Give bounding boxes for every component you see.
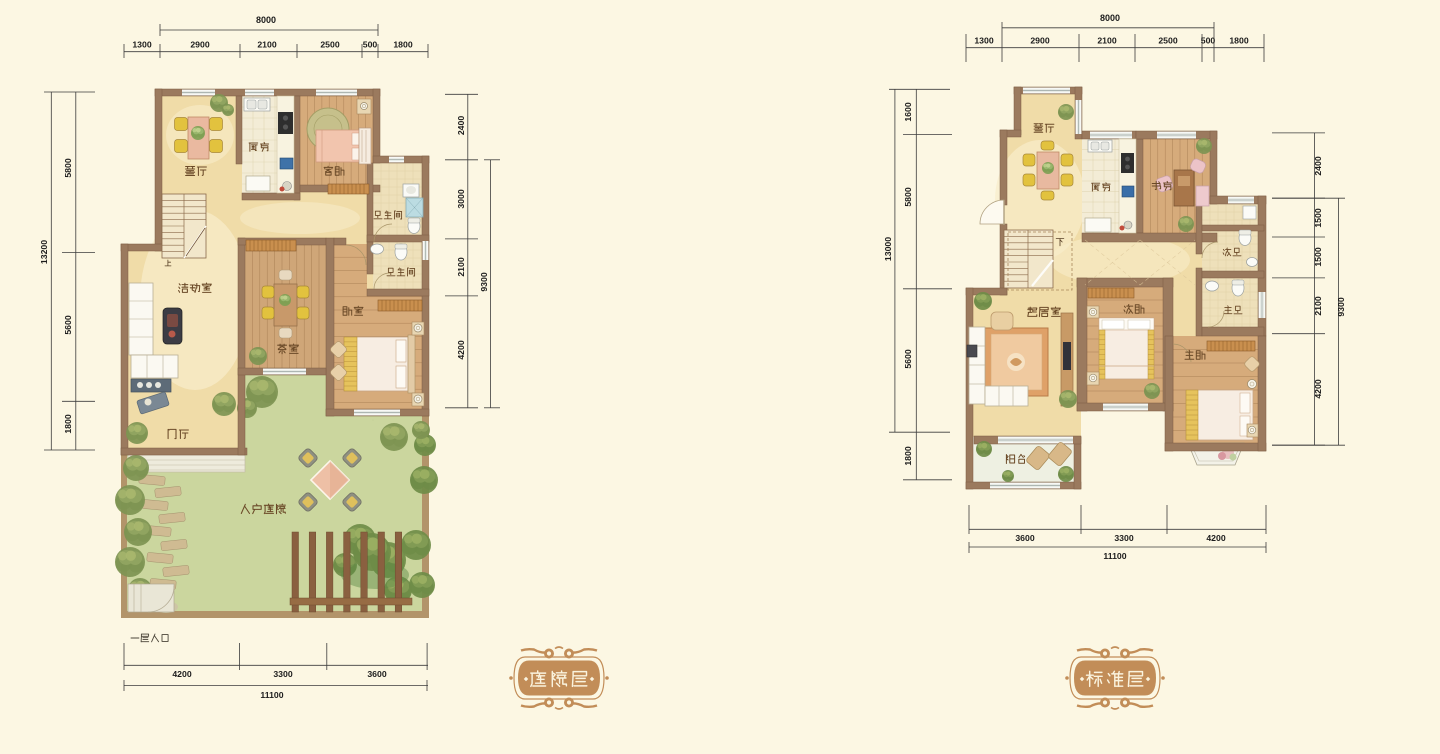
svg-text:2500: 2500 [320, 40, 339, 50]
svg-text:1800: 1800 [393, 40, 412, 50]
svg-text:1500: 1500 [1313, 247, 1323, 266]
svg-text:2400: 2400 [456, 116, 466, 135]
svg-text:9300: 9300 [1336, 297, 1346, 316]
svg-text:1800: 1800 [903, 446, 913, 465]
svg-text:1500: 1500 [1313, 208, 1323, 227]
svg-text:3300: 3300 [1114, 533, 1133, 543]
svg-text:4200: 4200 [456, 340, 466, 359]
svg-text:2100: 2100 [257, 40, 276, 50]
svg-text:13200: 13200 [39, 240, 49, 264]
svg-text:2900: 2900 [1030, 36, 1049, 46]
svg-text:3600: 3600 [367, 669, 386, 679]
svg-text:1800: 1800 [1229, 36, 1248, 46]
svg-text:500: 500 [363, 40, 378, 50]
svg-text:5600: 5600 [903, 349, 913, 368]
svg-text:500: 500 [1201, 36, 1216, 46]
svg-text:4200: 4200 [172, 669, 191, 679]
svg-text:2400: 2400 [1313, 156, 1323, 175]
svg-text:9300: 9300 [479, 272, 489, 291]
svg-text:2900: 2900 [190, 40, 209, 50]
svg-text:13000: 13000 [883, 237, 893, 261]
svg-text:8000: 8000 [256, 15, 276, 25]
svg-text:2100: 2100 [1313, 296, 1323, 315]
svg-text:11100: 11100 [260, 690, 283, 700]
svg-text:2100: 2100 [1097, 36, 1116, 46]
svg-text:3300: 3300 [273, 669, 292, 679]
svg-text:5800: 5800 [903, 187, 913, 206]
svg-text:1600: 1600 [903, 102, 913, 121]
svg-text:4200: 4200 [1206, 533, 1225, 543]
svg-text:3600: 3600 [1015, 533, 1034, 543]
svg-text:4200: 4200 [1313, 379, 1323, 398]
svg-text:1300: 1300 [974, 36, 993, 46]
svg-text:2100: 2100 [456, 257, 466, 276]
svg-text:8000: 8000 [1100, 13, 1120, 23]
svg-text:5800: 5800 [63, 158, 73, 177]
svg-text:11100: 11100 [1103, 551, 1126, 561]
svg-text:1300: 1300 [132, 40, 151, 50]
svg-text:1800: 1800 [63, 414, 73, 433]
svg-text:5600: 5600 [63, 315, 73, 334]
svg-text:2500: 2500 [1158, 36, 1177, 46]
svg-text:3000: 3000 [456, 189, 466, 208]
